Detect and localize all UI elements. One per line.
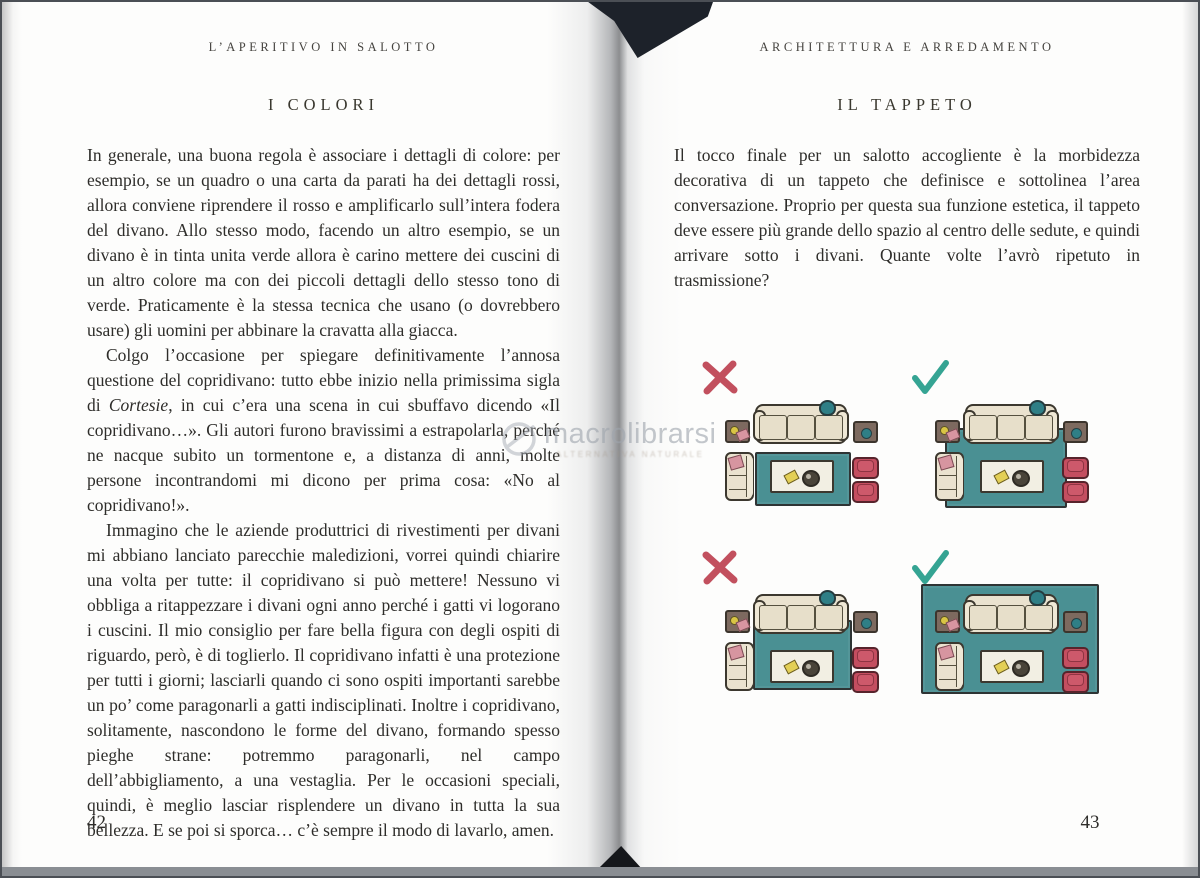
book-on-table: [783, 660, 799, 675]
coffee-table: [770, 460, 834, 493]
armchair-left: [725, 452, 754, 501]
side-table-right: [853, 611, 878, 633]
bowl-on-table: [802, 470, 820, 487]
room-diagram-right-medium-rug: [905, 352, 1145, 542]
sofa: [965, 594, 1057, 634]
page-stack-left-edge: [2, 2, 22, 876]
sofa: [755, 404, 847, 444]
armchair-left: [725, 642, 754, 691]
x-icon: [699, 358, 741, 398]
side-table-left: [935, 420, 960, 443]
book-on-table: [993, 470, 1009, 485]
room-diagram-right-large-rug: [905, 542, 1145, 732]
check-icon: [909, 548, 951, 588]
red-armchair-bottom: [852, 671, 879, 693]
italic-word: Cortesie: [109, 395, 168, 415]
room-diagram-wrong-medium-rug: [695, 542, 935, 732]
right-page-number: 43: [1060, 812, 1120, 834]
sofa: [965, 404, 1057, 444]
left-page-number: 42: [87, 812, 106, 834]
left-running-head: L’APERITIVO IN SALOTTO: [87, 40, 560, 55]
teal-vase: [819, 590, 836, 606]
armchair-left: [935, 452, 964, 501]
bowl-on-table: [1012, 470, 1030, 487]
right-section-title: IL TAPPETO: [674, 95, 1140, 115]
side-table-right: [1063, 421, 1088, 443]
side-table-right: [853, 421, 878, 443]
side-table-left: [935, 610, 960, 633]
left-section-title: I COLORI: [87, 95, 560, 115]
coffee-table: [770, 650, 834, 683]
side-table-right: [1063, 611, 1088, 633]
room-diagram-wrong-small-rug: [695, 352, 935, 542]
photo-bottom-border: [2, 867, 1198, 876]
bowl-on-table: [802, 660, 820, 677]
book-on-table: [993, 660, 1009, 675]
red-armchair-bottom: [1062, 671, 1089, 693]
teal-vase: [1029, 590, 1046, 606]
check-icon: [909, 358, 951, 398]
book-spread: L’APERITIVO IN SALOTTO I COLORI In gener…: [0, 0, 1200, 878]
coffee-table: [980, 650, 1044, 683]
x-icon: [699, 548, 741, 588]
red-armchair-top: [852, 457, 879, 479]
red-armchair-top: [1062, 647, 1089, 669]
teal-vase: [1029, 400, 1046, 416]
book-gutter-shadow: [547, 2, 715, 876]
right-running-head: ARCHITETTURA E ARREDAMENTO: [674, 40, 1140, 55]
page-right-edge: [1182, 2, 1198, 876]
red-armchair-top: [852, 647, 879, 669]
paragraph: Colgo l’occasione per spiegare definitiv…: [87, 343, 560, 518]
side-table-left: [725, 420, 750, 443]
sofa: [755, 594, 847, 634]
teal-vase: [819, 400, 836, 416]
paragraph: Il tocco finale per un salotto accoglien…: [674, 143, 1140, 293]
red-armchair-top: [1062, 457, 1089, 479]
red-armchair-bottom: [1062, 481, 1089, 503]
paragraph: Immagino che le aziende produttrici di r…: [87, 518, 560, 843]
paragraph: In generale, una buona regola è associar…: [87, 143, 560, 343]
left-body-text: In generale, una buona regola è associar…: [87, 143, 560, 843]
bowl-on-table: [1012, 660, 1030, 677]
coffee-table: [980, 460, 1044, 493]
armchair-left: [935, 642, 964, 691]
side-table-left: [725, 610, 750, 633]
red-armchair-bottom: [852, 481, 879, 503]
right-body-text: Il tocco finale per un salotto accoglien…: [674, 143, 1140, 293]
book-on-table: [783, 470, 799, 485]
